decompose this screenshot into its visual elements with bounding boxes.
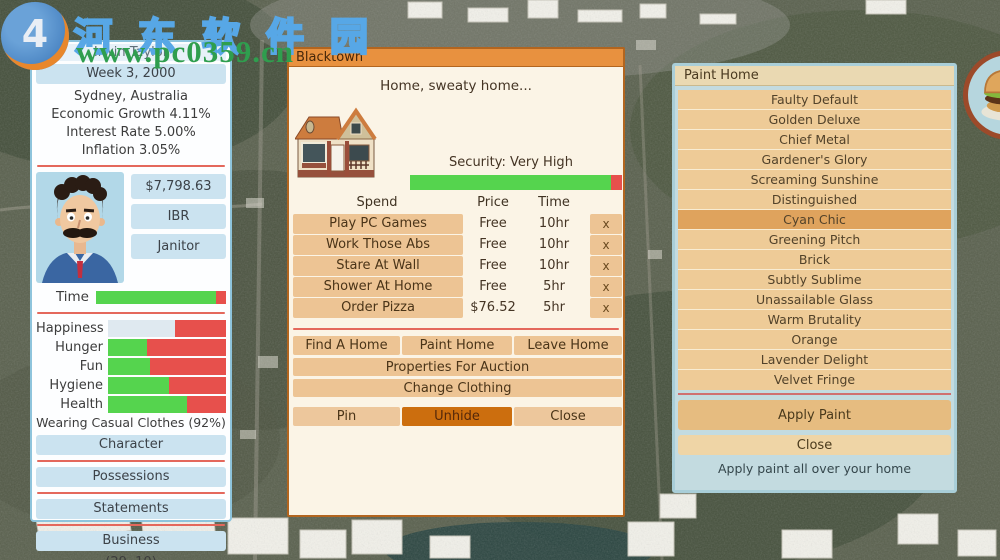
time-cell: 5hr bbox=[527, 298, 581, 318]
column-header-spend: Spend bbox=[327, 195, 427, 210]
price-cell: $76.52 bbox=[465, 298, 521, 318]
spend-action-button[interactable]: Order Pizza bbox=[293, 298, 463, 318]
needs-stats: Happiness Hunger Fun Hygiene Hea bbox=[36, 320, 226, 413]
divider bbox=[293, 328, 619, 330]
divider bbox=[37, 492, 225, 494]
stat-bar-hygiene bbox=[108, 377, 226, 394]
security-bar-fill bbox=[410, 175, 611, 190]
player-avatar bbox=[36, 172, 124, 283]
change-clothing-button[interactable]: Change Clothing bbox=[293, 379, 622, 397]
paint-option[interactable]: Warm Brutality bbox=[678, 310, 951, 330]
paint-option[interactable]: Chief Metal bbox=[678, 130, 951, 150]
close-window-button[interactable]: Close bbox=[514, 407, 622, 426]
security-label: Security: Very High bbox=[399, 155, 623, 170]
character-button[interactable]: Character bbox=[36, 435, 226, 455]
spend-action-button[interactable]: Stare At Wall bbox=[293, 256, 463, 276]
possessions-button[interactable]: Possessions bbox=[36, 467, 226, 487]
home-window-titlebar[interactable]: Blacktown bbox=[289, 49, 623, 67]
column-header-price: Price bbox=[465, 195, 521, 210]
price-cell: Free bbox=[465, 277, 521, 297]
business-button[interactable]: Business bbox=[36, 531, 226, 551]
residence-label: IBR Apartment bbox=[131, 204, 226, 229]
repeat-toggle-button[interactable]: x bbox=[590, 277, 622, 297]
unhide-button[interactable]: Unhide bbox=[402, 407, 512, 426]
paint-caption: Apply paint all over your home bbox=[675, 461, 954, 476]
paint-option[interactable]: Distinguished bbox=[678, 190, 951, 210]
paint-window-titlebar[interactable]: Paint Home bbox=[675, 66, 954, 86]
spend-action-button[interactable]: Play PC Games bbox=[293, 214, 463, 234]
interest-rate: Interest Rate 5.00% bbox=[36, 124, 226, 142]
stat-bar-fun bbox=[108, 358, 226, 375]
cash-amount: $7,798.63 bbox=[131, 174, 226, 199]
stat-label-happiness: Happiness bbox=[36, 320, 108, 337]
price-cell: Free bbox=[465, 256, 521, 276]
pin-button[interactable]: Pin bbox=[293, 407, 400, 426]
city-label: Sydney, Australia bbox=[36, 88, 226, 106]
divider bbox=[37, 524, 225, 526]
time-cell: 10hr bbox=[527, 214, 581, 234]
home-window: Blacktown Home, sweaty home... Security: bbox=[287, 47, 625, 517]
spend-action-button[interactable]: Shower At Home bbox=[293, 277, 463, 297]
leave-home-button[interactable]: Leave Home bbox=[514, 336, 622, 355]
paint-option[interactable]: Lavender Delight bbox=[678, 350, 951, 370]
paint-option[interactable]: Unassailable Glass bbox=[678, 290, 951, 310]
statements-button[interactable]: Statements bbox=[36, 499, 226, 519]
repeat-toggle-button[interactable]: x bbox=[590, 214, 622, 234]
spend-table-row: Order Pizza $76.52 5hr x bbox=[289, 298, 623, 318]
paint-option[interactable]: Brick bbox=[678, 250, 951, 270]
repeat-toggle-button[interactable]: x bbox=[590, 298, 622, 318]
repeat-toggle-button[interactable]: x bbox=[590, 235, 622, 255]
inflation: Inflation 3.05% bbox=[36, 142, 226, 160]
game-screen: Irwin Taylor Week 3, 2000 Sydney, Austra… bbox=[0, 0, 1000, 560]
paint-option[interactable]: Screaming Sunshine bbox=[678, 170, 951, 190]
map-coordinates: (29, 10) bbox=[36, 555, 226, 560]
paint-option[interactable]: Golden Deluxe bbox=[678, 110, 951, 130]
house-illustration bbox=[295, 97, 377, 181]
paint-options-list: Faulty Default Golden Deluxe Chief Metal… bbox=[678, 90, 951, 390]
spend-table-row: Play PC Games Free 10hr x bbox=[289, 214, 623, 234]
game-date: Week 3, 2000 bbox=[36, 64, 226, 84]
column-header-time: Time bbox=[527, 195, 581, 210]
divider bbox=[678, 393, 951, 395]
paint-home-button[interactable]: Paint Home bbox=[402, 336, 512, 355]
player-name: Irwin Taylor bbox=[36, 44, 226, 61]
economic-growth: Economic Growth 4.11% bbox=[36, 106, 226, 124]
paint-option[interactable]: Velvet Fringe bbox=[678, 370, 951, 390]
repeat-toggle-button[interactable]: x bbox=[590, 256, 622, 276]
time-cell: 10hr bbox=[527, 256, 581, 276]
stat-label-health: Health bbox=[36, 396, 108, 413]
time-label: Time bbox=[36, 289, 96, 305]
paint-option[interactable]: Cyan Chic bbox=[678, 210, 951, 230]
find-a-home-button[interactable]: Find A Home bbox=[293, 336, 400, 355]
home-greeting: Home, sweaty home... bbox=[289, 78, 623, 94]
divider bbox=[37, 312, 225, 314]
clothing-status: Wearing Casual Clothes (92%) bbox=[36, 415, 226, 430]
time-bar-fill bbox=[96, 291, 216, 304]
spend-table-row: Stare At Wall Free 10hr x bbox=[289, 256, 623, 276]
economy-summary: Sydney, Australia Economic Growth 4.11% … bbox=[36, 88, 226, 160]
stat-bar-hunger bbox=[108, 339, 226, 356]
player-panel: Irwin Taylor Week 3, 2000 Sydney, Austra… bbox=[30, 40, 232, 522]
stat-bar-health bbox=[108, 396, 226, 413]
security-bar bbox=[410, 175, 622, 190]
paint-option[interactable]: Gardener's Glory bbox=[678, 150, 951, 170]
job-label: Janitor bbox=[131, 234, 226, 259]
divider bbox=[37, 460, 225, 462]
close-paint-button[interactable]: Close bbox=[678, 435, 951, 455]
divider bbox=[37, 165, 225, 167]
price-cell: Free bbox=[465, 214, 521, 234]
stat-bar-happiness bbox=[108, 320, 226, 337]
time-cell: 10hr bbox=[527, 235, 581, 255]
time-cell: 5hr bbox=[527, 277, 581, 297]
burger-icon bbox=[968, 55, 1000, 135]
paint-option[interactable]: Greening Pitch bbox=[678, 230, 951, 250]
spend-action-button[interactable]: Work Those Abs bbox=[293, 235, 463, 255]
paint-option[interactable]: Faulty Default bbox=[678, 90, 951, 110]
stat-label-hygiene: Hygiene bbox=[36, 377, 108, 394]
spend-table-row: Work Those Abs Free 10hr x bbox=[289, 235, 623, 255]
paint-home-window: Paint Home Faulty Default Golden Deluxe … bbox=[672, 63, 957, 493]
properties-for-auction-button[interactable]: Properties For Auction bbox=[293, 358, 622, 376]
price-cell: Free bbox=[465, 235, 521, 255]
spend-table-row: Shower At Home Free 5hr x bbox=[289, 277, 623, 297]
paint-option[interactable]: Subtly Sublime bbox=[678, 270, 951, 290]
stat-label-hunger: Hunger bbox=[36, 339, 108, 356]
paint-option[interactable]: Orange bbox=[678, 330, 951, 350]
stat-label-fun: Fun bbox=[36, 358, 108, 375]
apply-paint-button[interactable]: Apply Paint bbox=[678, 400, 951, 430]
time-bar bbox=[96, 291, 226, 304]
